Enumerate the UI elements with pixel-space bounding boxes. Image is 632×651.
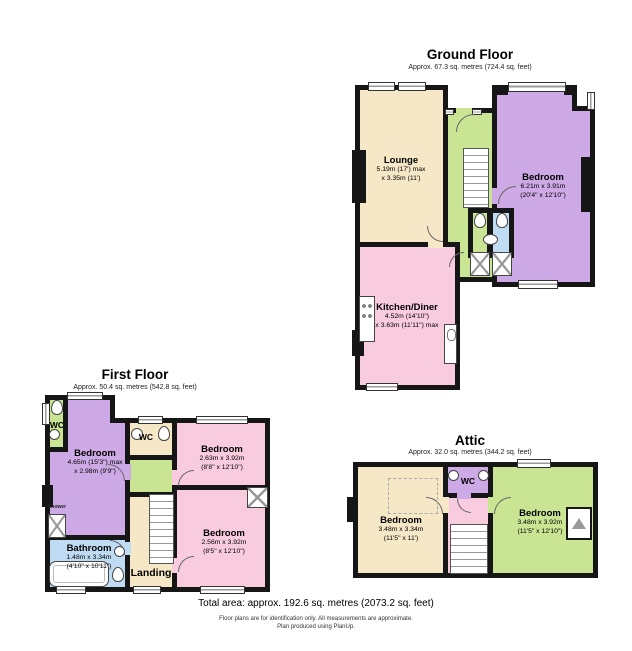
room-label-bedroom-first-tr: Bedroom 2.63m x 3.92m (8'8" x 12'10") — [178, 444, 266, 472]
first-floor-title: First Floor — [15, 367, 255, 382]
disclaimer-text: Floor plans are for identification only.… — [0, 616, 632, 622]
toilet-symbol — [496, 213, 508, 228]
window-symbol — [508, 82, 566, 92]
wall-block — [496, 85, 508, 95]
wardrobe-symbol — [247, 487, 268, 508]
room-label-bedroom-ground: Bedroom 6.21m x 3.91m (20'4" x 12'10") — [495, 172, 591, 200]
door-opening — [443, 497, 449, 513]
restricted-headroom-outline — [388, 478, 438, 514]
window-symbol — [398, 82, 426, 91]
ground-floor-subtitle: Approx. 67.3 sq. metres (724.4 sq. feet) — [350, 64, 590, 71]
attic-subtitle: Approx. 32.0 sq. metres (344.2 sq. feet) — [350, 449, 590, 456]
door-opening — [456, 108, 472, 114]
toilet-symbol — [51, 400, 63, 415]
produced-by-text: Plan produced using PlanUp. — [0, 624, 632, 630]
wc-label: WC — [133, 432, 159, 442]
room-label-kitchen: Kitchen/Diner 4.52m (14'10") x 3.63m (11… — [360, 302, 454, 330]
shower-tray-symbol — [48, 514, 66, 538]
shower-tray-symbol — [470, 252, 490, 276]
window-symbol — [587, 92, 595, 110]
ground-floor-title: Ground Floor — [350, 47, 590, 62]
window-symbol — [56, 586, 86, 594]
window-symbol — [518, 280, 558, 289]
room-label-lounge: Lounge 5.19m (17') max x 3.35m (11') — [356, 155, 446, 183]
sink-symbol — [49, 429, 60, 440]
room-label-bedroom-first-br: Bedroom 2.56m x 3.92m (8'5" x 12'10") — [180, 528, 268, 556]
room-label-bedroom-attic-right: Bedroom 3.48m x 3.92m (11'5" x 12'10") — [494, 508, 586, 536]
window-symbol — [445, 109, 454, 115]
first-floor-subtitle: Approx. 50.4 sq. metres (542.8 sq. feet) — [15, 384, 255, 391]
shower-label: Shower — [40, 504, 74, 510]
attic-title: Attic — [350, 433, 590, 448]
window-symbol — [67, 392, 103, 400]
room-label-bedroom-first-left: Bedroom 4.65m (15'3") max x 2.98m (9'9") — [52, 448, 138, 476]
kitchen-sink-symbol — [444, 324, 457, 364]
shower-tray-symbol — [492, 252, 512, 276]
window-symbol — [368, 82, 395, 91]
stairs-symbol — [463, 148, 489, 208]
window-symbol — [200, 586, 245, 594]
stairs-symbol — [149, 494, 174, 564]
room-label-bedroom-attic-left: Bedroom 3.48m x 3.34m (11'5" x 11') — [356, 515, 446, 543]
door-opening — [428, 242, 443, 248]
sink-symbol — [483, 234, 498, 245]
window-symbol — [196, 416, 248, 424]
floorplan-page: Ground Floor Approx. 67.3 sq. metres (72… — [0, 0, 632, 651]
total-area-text: Total area: approx. 192.6 sq. metres (20… — [0, 598, 632, 609]
wc-label: WC — [455, 476, 481, 486]
toilet-symbol — [158, 426, 170, 441]
window-symbol — [138, 416, 163, 424]
sink-bowl — [447, 329, 456, 341]
room-label-bathroom: Bathroom 1.48m x 3.34m (4'10" x 10'11") — [47, 543, 131, 571]
wc-label: WC — [46, 420, 68, 430]
window-symbol — [366, 383, 398, 391]
window-symbol — [517, 459, 551, 468]
landing-label: Landing — [122, 567, 180, 579]
toilet-symbol — [474, 213, 486, 228]
stairs-symbol — [450, 524, 488, 574]
door-opening — [172, 470, 178, 485]
window-symbol — [133, 586, 161, 594]
